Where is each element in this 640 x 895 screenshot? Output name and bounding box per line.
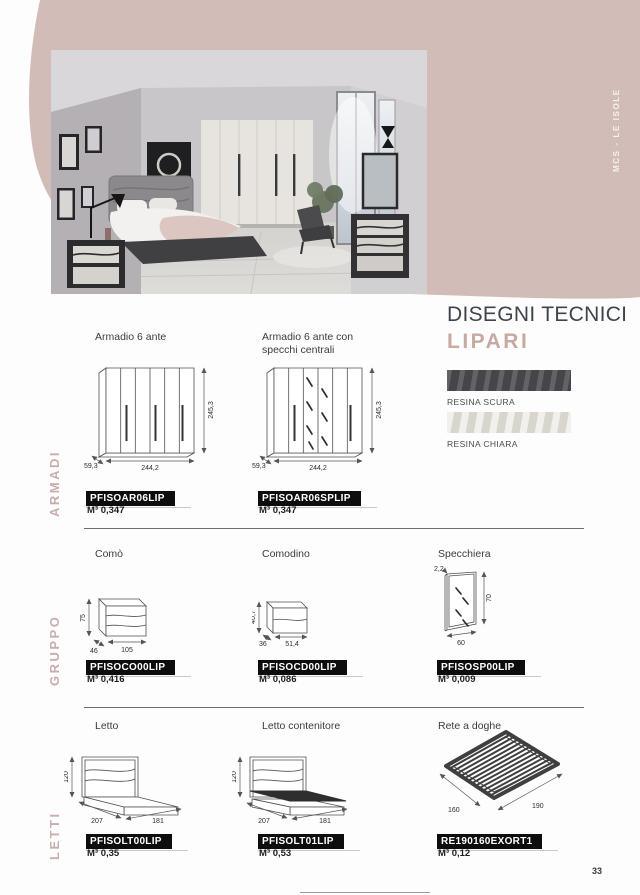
como-drawing: 75 46 105 [80,590,192,656]
rete-a-doghe-drawing: 160 190 [436,724,570,822]
bottom-divider [300,892,430,893]
svg-text:244,2: 244,2 [309,465,327,472]
dresser [351,214,409,278]
side-collection-label: MCS - LE ISOLE [612,52,621,172]
product-volume: M³ 0,347 [87,505,125,516]
svg-text:51,4: 51,4 [285,641,299,648]
product-volume: M³ 0,416 [87,674,125,685]
product-volume: M³ 0,086 [259,674,297,685]
svg-text:59,3: 59,3 [84,463,98,470]
dresser-mirror [363,154,397,208]
svg-text:190: 190 [532,803,544,810]
product-name: Comodino [262,548,310,561]
svg-text:245,3: 245,3 [376,401,383,419]
wardrobe [201,120,313,228]
letto-drawing: 120 207 181 [64,745,199,825]
svg-text:36: 36 [259,641,267,648]
svg-text:70: 70 [486,594,493,602]
product-name: Armadio 6 ante con specchi centrali [262,331,382,357]
specchiera-drawing: 2,2 70 60 [432,562,496,650]
section-divider [84,528,584,529]
letto-contenitore-drawing: 120 207 181 [232,745,367,825]
svg-text:160: 160 [448,807,460,814]
product-volume: M³ 0,347 [259,505,297,516]
page-title: DISEGNI TECNICI [447,303,627,327]
armadio-6-ante-specchi-drawing: 245,3 244,2 59,3 [252,356,402,474]
svg-text:105: 105 [121,647,133,654]
product-name: Letto [95,720,118,733]
page-number: 33 [592,866,602,876]
finish-swatch-resina-chiara [447,412,571,433]
rug [273,246,353,268]
product-name: Letto contenitore [262,720,340,733]
product-volume: M³ 0,53 [259,848,291,859]
svg-text:245,3: 245,3 [208,401,215,419]
svg-text:207: 207 [258,818,270,825]
product-volume: M³ 0,009 [438,674,476,685]
comodino-drawing: 40,7 36 51,4 [252,596,330,650]
product-volume: M³ 0,35 [87,848,119,859]
finish-label: RESINA CHIARA [447,439,518,449]
bedroom-photo-illustration [51,50,427,294]
svg-text:59,3: 59,3 [252,463,266,470]
section-label-letti: LETTI [47,810,62,860]
svg-text:244,2: 244,2 [141,465,159,472]
svg-text:60: 60 [457,640,465,647]
svg-text:181: 181 [319,818,331,825]
room-photo [51,50,427,294]
collection-name: LIPARI [447,330,529,354]
svg-text:207: 207 [91,818,103,825]
svg-text:75: 75 [80,614,87,622]
catalog-page: MCS - LE ISOLE DISEGNI TECNICI LIPARI RE… [0,0,640,895]
svg-text:40,7: 40,7 [252,610,257,624]
svg-text:46: 46 [90,648,98,655]
finish-swatch-resina-scura [447,370,571,391]
svg-text:120: 120 [64,771,70,783]
section-label-armadi: ARMADI [47,455,62,517]
product-name: Armadio 6 ante [95,331,166,344]
product-name: Comò [95,548,123,561]
svg-text:181: 181 [152,818,164,825]
section-divider [84,707,584,708]
svg-text:2,2: 2,2 [434,566,444,573]
section-label-gruppo: GRUPPO [47,620,62,686]
finish-label: RESINA SCURA [447,397,515,407]
svg-text:120: 120 [232,771,238,783]
armadio-6-ante-drawing: 245,3 244,2 59,3 [84,356,234,474]
product-name: Specchiera [438,548,491,561]
product-volume: M³ 0,12 [438,848,470,859]
